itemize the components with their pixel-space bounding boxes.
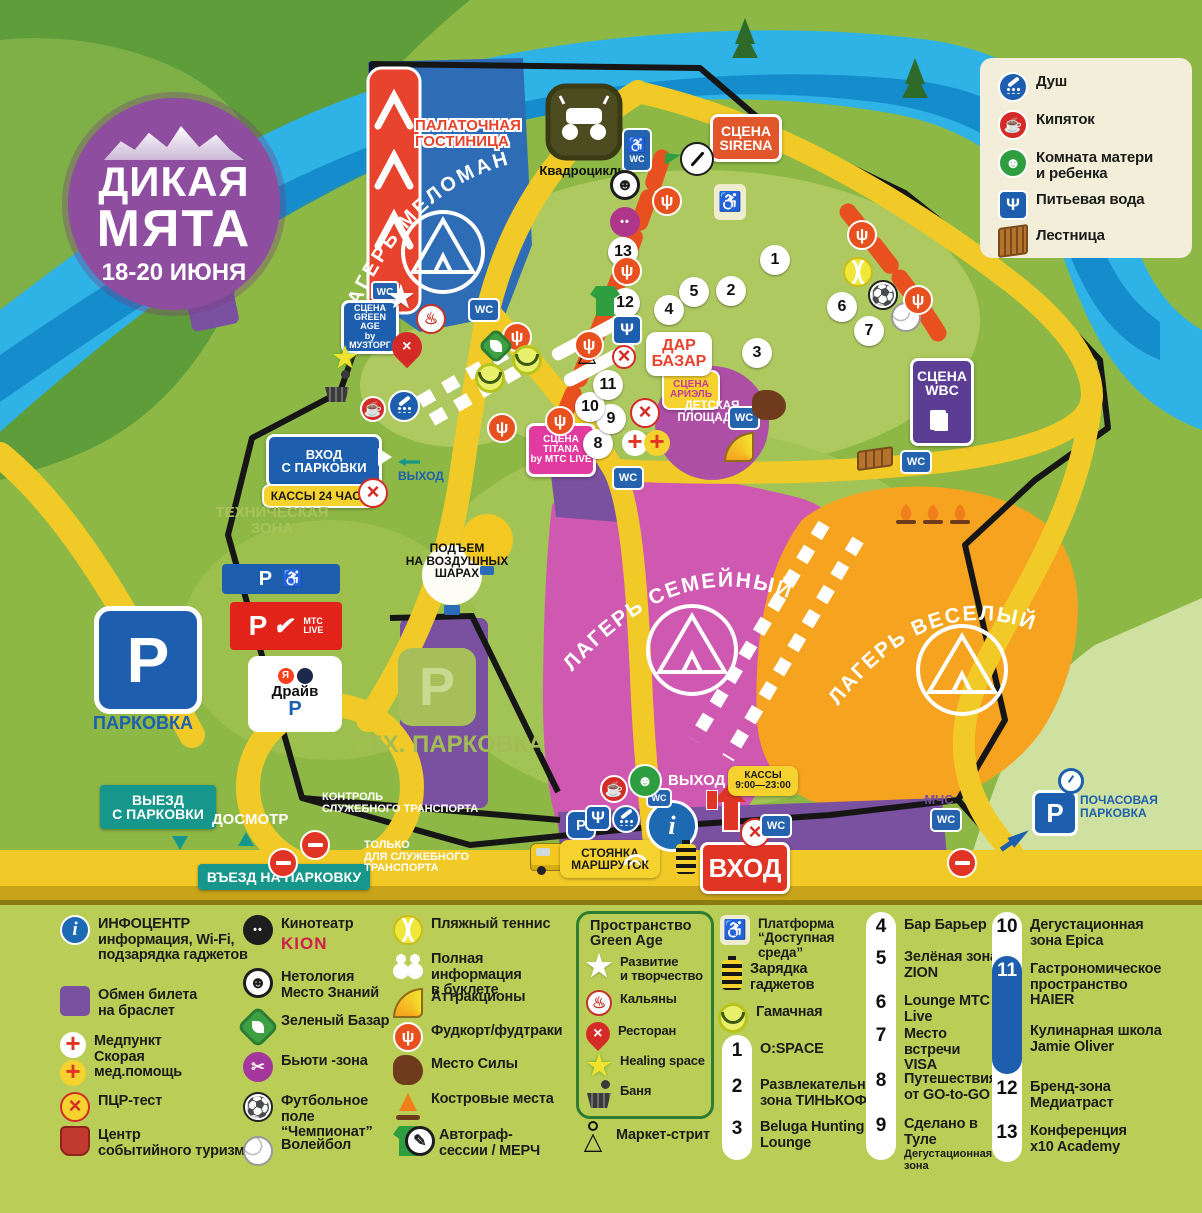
wc-sign: WC [930,808,962,832]
legend-item: Баня [586,1082,706,1108]
legend-number: 6 [866,992,896,1014]
legend-number: 5 [866,948,896,970]
mother-child-map-icon [628,764,662,798]
legend-numbered-item: 10Дегустационная зона Epica [992,916,1192,949]
legend-item: Автограф- сессии / МЕРЧ [393,1126,573,1159]
entrance-arrow-icon [378,448,392,466]
legend-item: Аттракционы [393,988,573,1018]
drinking-water-map-icon [585,805,611,831]
legend-item: Развитие и творчество [586,953,706,983]
legend-number: 4 [866,916,896,938]
wc-accessible-sign: WC [622,128,652,172]
ticket-hours-sign: КАССЫ 9:00—23:00 [728,766,798,796]
legend-label: O:SPACE [760,1040,824,1058]
legend-label: Центр событийного туризма [98,1126,252,1159]
boiling-water-map-icon [600,775,628,803]
legend-item: Пляжный теннис [393,915,573,945]
logo-art [104,126,244,160]
no-entry-icon [947,848,977,878]
restaurant-icon [581,1017,615,1051]
flag-icon [658,144,688,174]
stairs-icon [998,224,1028,258]
legend-label: Медпункт Скорая мед.помощь [94,1032,182,1081]
foodcourt-pin-icon [903,285,933,315]
service-control-label: КОНТРОЛЬ СЛУЖЕБНОГО ТРАНСПОРТА [322,792,478,815]
legend-number: 8 [866,1070,896,1092]
parking-main-sign: P [94,606,202,714]
mother-child-room-icon [998,148,1028,178]
no-entry-icon [300,830,330,860]
volleyball-icon [243,1136,273,1166]
legend-numbered-item: 9 Сделано в Туле Дегустационная зона [866,1115,1001,1172]
p-letter: P [249,610,268,642]
place-of-power-icon [393,1055,423,1085]
inspection-label: ДОСМОТР [212,812,288,828]
shower-icon [998,72,1028,102]
first-aid-icon [60,1032,86,1058]
wc-sign: WC [612,466,644,490]
map-marker: 2 [716,276,746,306]
foodcourt-pin-icon [612,256,642,286]
legend-number: 3 [722,1118,752,1140]
hammock-map-icon [512,345,542,375]
foodcourt-pin-icon [487,413,517,443]
legend-number: 1 [722,1040,752,1062]
exit-down-arrow [706,790,718,810]
logo-dates: 18-20 ИЮНЯ [68,260,280,285]
stage-sirena-sign: СЦЕНА SIRENA [710,114,782,162]
legend-number: 11 [992,960,1022,982]
map-marker: 3 [742,338,772,368]
green-age-title: Пространство Green Age [590,919,692,949]
banya-map-icon [322,372,352,402]
legend-number: 13 [992,1122,1022,1144]
tech-parking-label: ТЕХ. ПАРКОВКА [352,732,572,757]
legend-item: Место Силы [393,1055,573,1085]
legend-label: Сделано в Туле [904,1115,1001,1148]
legend-number: 12 [992,1078,1022,1100]
entry-up-arrow-icon [238,832,254,846]
beach-tennis-map-icon [843,257,873,287]
legend-label: Гастрономическое пространство HAIER [1030,960,1161,1009]
legend-item: Бьюти -зона [243,1052,393,1082]
service-only-label: ТОЛЬКО ДЛЯ СЛУЖЕБНОГО ТРАНСПОРТА [364,840,469,875]
legend-label: Конференция x10 Academy [1030,1122,1127,1155]
exit-main-label: ВЫХОД [668,773,725,789]
charging-icon [722,960,742,990]
ambulance-map-icon [644,430,670,456]
legend-label: Зарядка гаджетов [750,960,814,993]
facility-label: Лестница [1036,226,1105,244]
stairs-map-icon [858,447,892,470]
entrance-main-sign: ВХОД [700,842,790,894]
wc-sign: WC [760,814,792,838]
netology-icon [243,968,273,998]
stage-wbc-sign: СЦЕНА WBC [910,358,974,446]
legend-numbered-item: 8Путешествия от GO-to-GO [866,1070,1001,1103]
exit-gate-label: ВЫХОД [398,470,444,483]
quad-bike-icon [548,86,620,158]
cinema-icon [243,915,273,945]
facility-label: Кипяток [1036,110,1095,128]
wristband-exchange-icon [60,986,90,1016]
foodcourt-pin-icon [545,406,575,436]
legend-numbered-item: Кулинарная школа Jamie Oliver [992,1022,1192,1055]
map-marker: 6 [827,292,857,322]
campfire-icon [393,1090,423,1120]
event-tourism-icon [60,1126,90,1156]
info-icon [60,915,90,945]
legend-item: Фудкорт/фудтраки [393,1022,573,1052]
facility-label: Комната матери и ребенка [1036,148,1153,182]
legend-numbered-item: 4Бар Барьер [866,916,1001,938]
wc-label: WC [630,154,645,164]
pcr-test-icon [60,1092,90,1122]
legend-label: Бренд-зона Медиатраст [1030,1078,1114,1111]
legend-item: Медпункт Скорая мед.помощь [60,1032,255,1086]
exit-from-parking-sign: ВЫЕЗД С ПАРКОВКИ [100,785,216,829]
legend-label: Lounge МТС Live [904,992,1001,1025]
legend-label: Автограф- сессии / МЕРЧ [439,1126,540,1159]
beach-tennis-icon [393,915,423,945]
legend-numbered-item: 1O:SPACE [722,1040,872,1062]
hourly-parking-label: ПОЧАСОВАЯ ПАРКОВКА [1080,794,1172,819]
parking-label: ПАРКОВКА [78,714,208,733]
legend-item: Платформа “Доступная среда” [720,915,865,960]
festival-logo: ДИКАЯ МЯТА 18-20 ИЮНЯ [68,98,280,310]
legend-numbered-item: 13Конференция x10 Academy [992,1122,1192,1155]
legend-item: Ресторан [586,1022,706,1046]
facility-label: Душ [1036,72,1067,90]
development-star-map-icon [386,282,416,312]
hammock-icon [718,1003,748,1033]
legend-label: Ресторан [618,1022,676,1038]
legend-label: Футбольное поле “Чемпионат” [281,1092,393,1141]
legend-item: Зарядка гаджетов [722,960,867,993]
legend-label: Маркет-стрит [616,1126,710,1144]
map-marker: 7 [854,316,884,346]
foodcourt-pin-icon [652,186,682,216]
clock-icon [1058,768,1084,794]
legend-label: Дегустационная зона Epica [1030,916,1143,949]
legend-label: Костровые места [431,1090,554,1108]
legend-item: Маркет-стрит [578,1126,718,1156]
legend-label: Аттракционы [431,988,525,1006]
boiling-water-map-icon [360,396,386,422]
parking-mts-live-sign: P ✔ МТС LIVE [230,602,342,650]
festival-map: WC ЛАГЕРЬ МЕЛОМАН ЛАГЕРЬ СЕМЕЙНЫЙ [0,0,1202,1213]
legend-label: Обмен билета на браслет [98,986,197,1019]
legend-label: Кинотеатр [281,915,353,933]
legend-item: Волейбол [243,1136,393,1166]
yandex-icon: Я [278,668,294,684]
legend-numbered-item: 7Место встречи VISA [866,1025,1001,1074]
legend-label: Место Силы [431,1055,518,1073]
hourly-parking-p-sign: P [1032,790,1078,836]
legend-numbered-item: 2Развлекательная зона ТИНЬКОФФ [722,1076,872,1109]
beauty-zone-icon [243,1052,273,1082]
map-marker: 11 [593,370,623,400]
legend-item: Кинотеатр KION [243,915,393,953]
legend-item: Футбольное поле “Чемпионат” [243,1092,393,1141]
entrance-up-arrow [722,798,740,832]
balloons-label: ПОДЪЕМ НА ВОЗДУШНЫХ ШАРАХ [402,542,512,580]
ambulance-icon [60,1060,86,1086]
mts-live-label: МТС LIVE [303,617,323,636]
legend-label: Кальяны [620,990,677,1006]
tent-hotel-label: ПАЛАТОЧНАЯ ГОСТИНИЦА [415,118,525,150]
legend-number: 2 [722,1076,752,1098]
accessible-platform-map-icon [714,184,746,220]
legend-label: Гамачная [756,1003,822,1021]
legend-number: 10 [992,916,1022,938]
legend-label: Путешествия от GO-to-GO [904,1070,997,1103]
green-bazaar-icon [237,1006,279,1048]
legend-item: Центр событийного туризма [60,1126,255,1159]
legend-item: Обмен билета на браслет [60,986,255,1019]
parking-accessible-sign: P♿ [222,564,340,594]
facilities-legend: Душ Кипяток Комната матери и ребенка Пит… [980,58,1192,258]
autograph-merch-icon [405,1126,435,1156]
legend-item: ПЦР-тест [60,1092,255,1122]
p-letter: P [288,699,301,720]
legend-label: Зеленый Базар [281,1012,389,1030]
hookah-map-icon [416,304,446,334]
cinema-map-icon [610,207,640,237]
legend-item: Гамачная [718,1003,863,1033]
hammock-map-icon [475,363,505,393]
legend-numbered-item: 11Гастрономическое пространство HAIER [992,960,1192,1009]
shower-map-icon [388,390,420,422]
legend-sublabel: Дегустационная зона [904,1148,1001,1172]
legend-label: Развитие и творчество [620,953,703,983]
campfires [896,504,970,524]
football-map-icon [868,280,898,310]
wheelchair-icon: ♿ [282,569,303,589]
football-icon [243,1092,273,1122]
accessible-platform-icon [720,915,750,945]
legend-label: Пляжный теннис [431,915,550,933]
legend-label: Нетология Место Знаний [281,968,379,1001]
p-letter: P [259,568,272,591]
attractions-icon [393,988,423,1018]
legend-label: ИНФОЦЕНТР информация, Wi-Fi, подзарядка … [98,915,248,964]
legend-label: Beluga Hunting Lounge [760,1118,864,1151]
drinking-water-map-icon [612,315,642,345]
pcr-test-map-icon [630,398,660,428]
legend-item: Костровые места [393,1090,573,1120]
legend-label: Бар Барьер [904,916,987,934]
wc-sign: WC [900,450,932,474]
place-of-power-map-icon [752,390,786,420]
pcr-test-map-icon [612,345,636,369]
tech-parking-p-sign: P [398,648,476,726]
legend-label: ПЦР-тест [98,1092,162,1110]
pcr-test-map-icon [358,478,388,508]
foodcourt-icon [393,1022,423,1052]
map-marker: 4 [654,295,684,325]
drive-label: Драйв [272,684,319,700]
map-marker: 1 [760,245,790,275]
mts-check-icon: ✔ [272,612,298,641]
logo-title-line2: МЯТА [68,202,280,257]
legend-label: Фудкорт/фудтраки [431,1022,562,1040]
legend-numbered-item: 6Lounge МТС Live [866,992,1001,1025]
tech-zone-label: ТЕХНИЧЕСКАЯ ЗОНА [212,505,332,537]
legend-numbered-item: 3Beluga Hunting Lounge [722,1118,872,1151]
logo-title-line1: ДИКАЯ [68,160,280,204]
shower-map-icon [612,805,640,833]
legend-label: Волейбол [281,1136,351,1154]
wifi-icon [620,852,646,868]
legend-numbered-item: 5Зелёная зона ZION [866,948,1001,981]
legend-number: 7 [866,1025,896,1047]
legend-label: Бьюти -зона [281,1052,368,1070]
banya-icon [586,1082,612,1108]
facility-label: Питьевая вода [1036,190,1144,208]
no-entry-icon [268,848,298,878]
legend-label: Развлекательная зона ТИНЬКОФФ [760,1076,882,1109]
drive-icon [297,668,313,684]
legend-label: Кулинарная школа Jamie Oliver [1030,1022,1162,1055]
foodcourt-pin-icon [574,330,604,360]
legend-item: ИНФОЦЕНТР информация, Wi-Fi, подзарядка … [60,915,255,964]
exit-down-arrow-icon [172,836,188,850]
kion-brand: KION [281,933,353,953]
netology-map-icon [610,170,640,200]
healing-space-icon [586,1052,612,1078]
legend-label: Платформа “Доступная среда” [758,915,865,960]
hookah-icon [586,990,612,1016]
dar-bazar-label: ДАР БАЗАР [646,332,712,376]
legend-numbered-item: 12Бренд-зона Медиатраст [992,1078,1192,1111]
legend-item: Нетология Место Знаний [243,968,393,1001]
legend-item: Healing space [586,1052,706,1078]
boiling-water-icon [998,110,1028,140]
development-star-icon [586,953,612,979]
drinking-water-icon [998,190,1028,220]
legend-label: Место встречи VISA [904,1025,1001,1074]
foodcourt-pin-icon [847,220,877,250]
legend-item: Кальяны [586,990,706,1016]
wc-sign: WC [468,298,500,322]
beer-mug-icon [930,410,946,430]
legend-label: Баня [620,1082,651,1098]
hanger-icon [578,1126,608,1156]
healing-space-map-icon [330,342,360,372]
legend-item: Зеленый Базар [243,1012,393,1042]
booklet-info-icon [393,950,423,980]
legend-label: Healing space [620,1052,705,1068]
parking-drive-sign: Я Драйв P [248,656,342,732]
legend-label: Зелёная зона ZION [904,948,998,981]
map-marker: 5 [679,277,709,307]
charging-icon [676,844,696,874]
legend-number: 9 [866,1115,896,1137]
